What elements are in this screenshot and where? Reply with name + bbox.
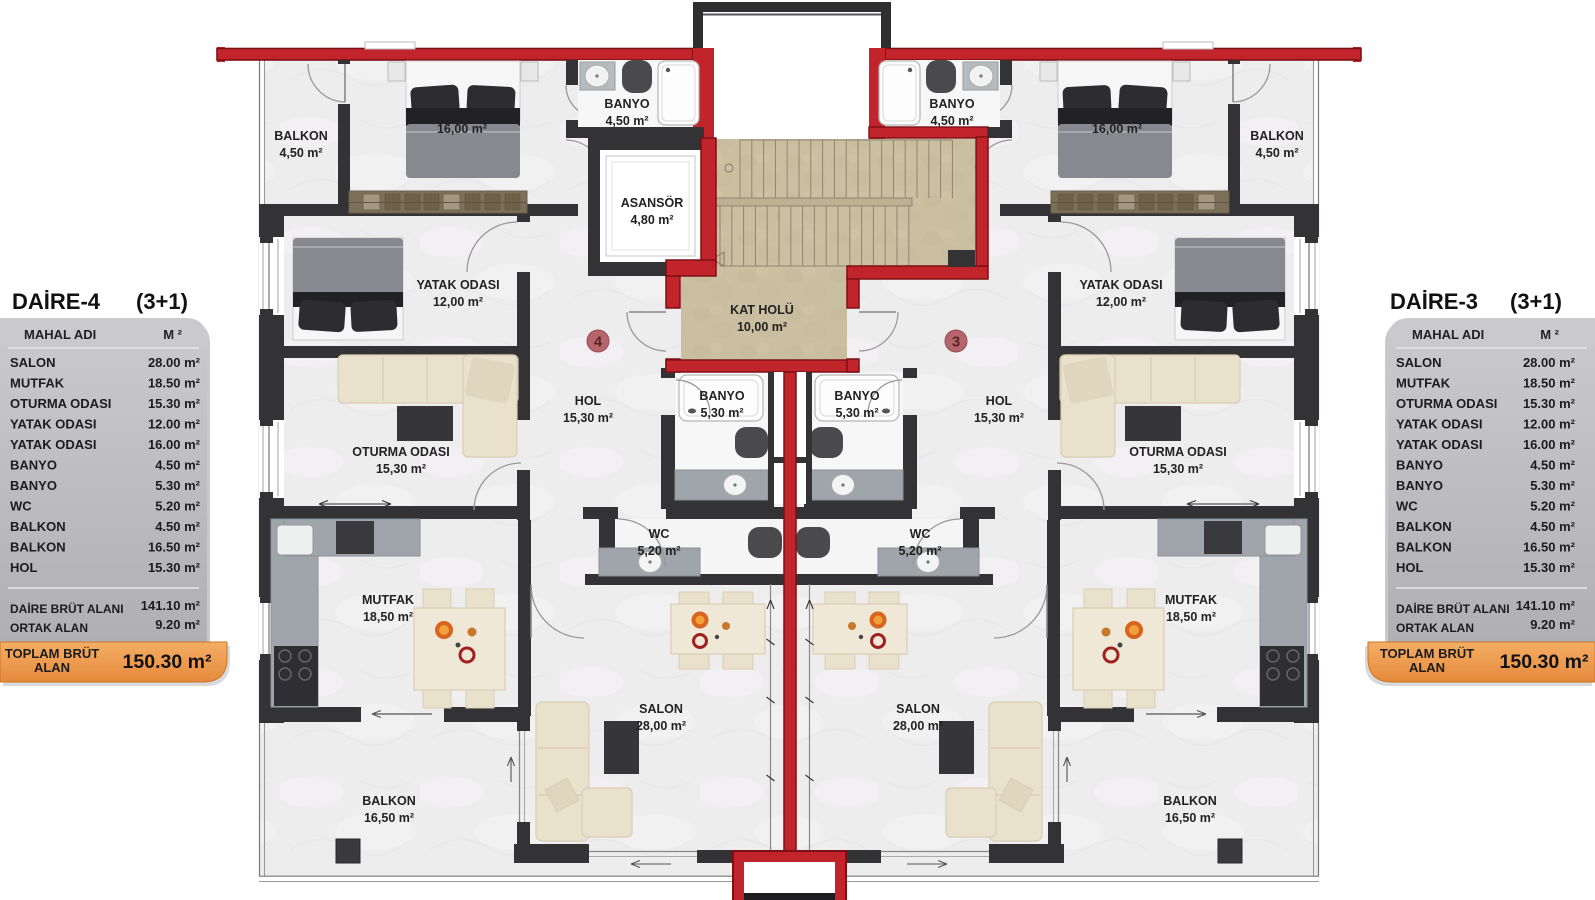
svg-text:BANYO: BANYO [10,458,57,473]
svg-text:28,00 m²: 28,00 m² [636,719,686,733]
svg-text:28.00 m²: 28.00 m² [148,355,201,370]
svg-text:M ²: M ² [163,327,182,342]
svg-text:BALKON: BALKON [1396,540,1452,555]
svg-text:BALKON: BALKON [362,794,415,808]
svg-text:ALAN: ALAN [34,660,70,675]
svg-text:OTURMA ODASI: OTURMA ODASI [352,445,449,459]
svg-text:4,50 m²: 4,50 m² [279,146,322,160]
svg-text:WC: WC [1396,499,1418,514]
svg-text:15,30 m²: 15,30 m² [563,411,613,425]
svg-text:ORTAK ALAN: ORTAK ALAN [1396,621,1474,635]
svg-text:MAHAL ADI: MAHAL ADI [24,327,96,342]
svg-text:16.50 m²: 16.50 m² [1523,540,1576,555]
svg-text:150.30 m²: 150.30 m² [1500,651,1589,673]
svg-text:5.20 m²: 5.20 m² [155,499,200,514]
svg-text:15,30 m²: 15,30 m² [1153,462,1203,476]
svg-text:4.50 m²: 4.50 m² [1530,458,1575,473]
svg-text:YATAK ODASI: YATAK ODASI [10,417,96,432]
svg-text:4.50 m²: 4.50 m² [155,519,200,534]
svg-text:MUTFAK: MUTFAK [1165,593,1217,607]
svg-text:9.20 m²: 9.20 m² [1530,617,1575,632]
svg-text:16,00 m²: 16,00 m² [1092,122,1142,136]
svg-text:SALON: SALON [10,355,56,370]
svg-text:15.30 m²: 15.30 m² [148,560,201,575]
svg-text:ALAN: ALAN [1409,660,1445,675]
svg-text:SALON: SALON [1396,355,1442,370]
svg-text:28.00 m²: 28.00 m² [1523,355,1576,370]
svg-text:ASANSÖR: ASANSÖR [621,195,684,210]
svg-text:YATAK ODASI: YATAK ODASI [1396,417,1482,432]
svg-text:BALKON: BALKON [274,129,327,143]
svg-text:18,50 m²: 18,50 m² [1166,610,1216,624]
svg-text:5,30 m²: 5,30 m² [700,406,743,420]
svg-text:YATAK ODASI: YATAK ODASI [416,278,499,292]
svg-text:15.30 m²: 15.30 m² [148,396,201,411]
svg-text:BALKON: BALKON [1163,794,1216,808]
svg-text:WC: WC [910,527,931,541]
svg-text:4,80 m²: 4,80 m² [630,213,673,227]
svg-text:MUTFAK: MUTFAK [1396,376,1451,391]
svg-text:5.30 m²: 5.30 m² [1530,478,1575,493]
svg-text:12,00 m²: 12,00 m² [433,295,483,309]
svg-text:10,00 m²: 10,00 m² [737,320,787,334]
svg-text:HOL: HOL [1396,560,1424,575]
svg-text:12.00 m²: 12.00 m² [1523,417,1576,432]
svg-text:9.20 m²: 9.20 m² [155,617,200,632]
svg-text:(3+1): (3+1) [1510,289,1562,314]
svg-text:BANYO: BANYO [699,389,744,403]
svg-text:BALKON: BALKON [10,540,66,555]
svg-text:BANYO: BANYO [834,389,879,403]
svg-text:4,50 m²: 4,50 m² [605,114,648,128]
svg-text:141.10 m²: 141.10 m² [1516,598,1576,613]
svg-text:M ²: M ² [1540,327,1559,342]
svg-text:BALKON: BALKON [10,519,66,534]
svg-text:15.30 m²: 15.30 m² [1523,560,1576,575]
svg-text:12,00 m²: 12,00 m² [1096,295,1146,309]
svg-text:4.50 m²: 4.50 m² [1530,519,1575,534]
svg-text:5.30 m²: 5.30 m² [155,478,200,493]
svg-text:15.30 m²: 15.30 m² [1523,396,1576,411]
svg-text:YATAK ODASI: YATAK ODASI [1079,278,1162,292]
svg-text:16,50 m²: 16,50 m² [1165,811,1215,825]
svg-text:5,30 m²: 5,30 m² [835,406,878,420]
svg-text:DAİRE-3: DAİRE-3 [1390,289,1478,314]
svg-text:DAİRE BRÜT ALANI: DAİRE BRÜT ALANI [1396,601,1510,616]
svg-text:4.50 m²: 4.50 m² [155,458,200,473]
svg-text:BANYO: BANYO [929,97,974,111]
svg-text:OTURMA ODASI: OTURMA ODASI [1396,396,1497,411]
svg-text:BANYO: BANYO [10,478,57,493]
svg-text:KAT HOLÜ: KAT HOLÜ [730,302,794,317]
svg-text:5,20 m²: 5,20 m² [898,544,941,558]
svg-text:MUTFAK: MUTFAK [10,376,65,391]
svg-text:5,20 m²: 5,20 m² [637,544,680,558]
svg-text:BANYO: BANYO [604,97,649,111]
svg-text:SALON: SALON [896,702,940,716]
svg-text:BANYO: BANYO [1396,458,1443,473]
svg-text:4,50 m²: 4,50 m² [1255,146,1298,160]
svg-text:28,00 m²: 28,00 m² [893,719,943,733]
svg-text:16,50 m²: 16,50 m² [364,811,414,825]
svg-text:4: 4 [594,334,603,351]
svg-text:TOPLAM BRÜT: TOPLAM BRÜT [1380,646,1474,661]
svg-text:16,00 m²: 16,00 m² [437,122,487,136]
svg-text:BANYO: BANYO [1396,478,1443,493]
svg-text:HOL: HOL [10,560,38,575]
svg-text:BALKON: BALKON [1250,129,1303,143]
svg-text:12.00 m²: 12.00 m² [148,417,201,432]
svg-text:OTURMA ODASI: OTURMA ODASI [1129,445,1226,459]
svg-text:MAHAL ADI: MAHAL ADI [1412,327,1484,342]
svg-text:TOPLAM BRÜT: TOPLAM BRÜT [5,646,99,661]
svg-text:WC: WC [10,499,32,514]
svg-text:16.50 m²: 16.50 m² [148,540,201,555]
svg-text:DAİRE-4: DAİRE-4 [12,289,101,314]
svg-text:(3+1): (3+1) [136,289,188,314]
svg-text:DAİRE BRÜT ALANI: DAİRE BRÜT ALANI [10,601,124,616]
svg-text:BALKON: BALKON [1396,519,1452,534]
svg-text:141.10 m²: 141.10 m² [141,598,201,613]
svg-text:YATAK ODASI: YATAK ODASI [10,437,96,452]
svg-text:HOL: HOL [986,394,1013,408]
svg-text:SALON: SALON [639,702,683,716]
svg-text:18,50 m²: 18,50 m² [363,610,413,624]
svg-text:ORTAK ALAN: ORTAK ALAN [10,621,88,635]
svg-text:HOL: HOL [575,394,602,408]
svg-text:18.50 m²: 18.50 m² [1523,376,1576,391]
svg-text:5.20 m²: 5.20 m² [1530,499,1575,514]
svg-text:16.00 m²: 16.00 m² [148,437,201,452]
svg-text:16.00 m²: 16.00 m² [1523,437,1576,452]
svg-text:150.30 m²: 150.30 m² [123,651,212,673]
svg-text:YATAK ODASI: YATAK ODASI [1396,437,1482,452]
svg-text:MUTFAK: MUTFAK [362,593,414,607]
svg-text:15,30 m²: 15,30 m² [974,411,1024,425]
svg-text:OTURMA ODASI: OTURMA ODASI [10,396,111,411]
svg-text:3: 3 [952,334,960,351]
svg-text:WC: WC [649,527,670,541]
svg-text:18.50 m²: 18.50 m² [148,376,201,391]
svg-text:4,50 m²: 4,50 m² [930,114,973,128]
svg-text:15,30 m²: 15,30 m² [376,462,426,476]
